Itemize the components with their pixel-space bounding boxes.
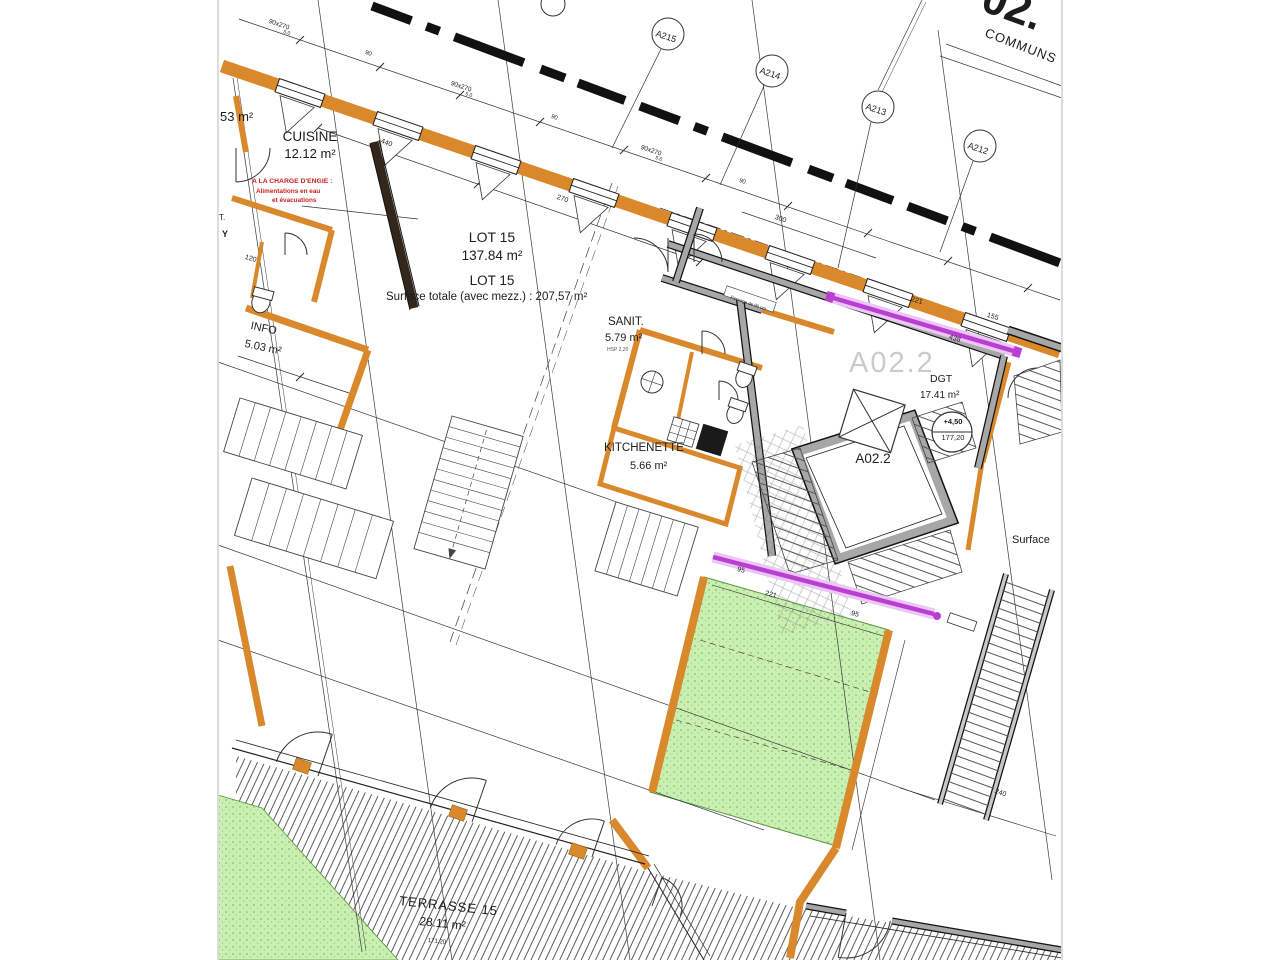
heavy-dashed-wall-line	[372, 6, 1060, 263]
red-note-line2: Alimentations en eau	[256, 188, 320, 195]
red-note-leader	[302, 206, 418, 219]
dim-95b: 95	[850, 610, 860, 619]
sheet-left-edge	[217, 0, 219, 960]
room-area-lot15: 137.84 m²	[442, 249, 542, 264]
room-label-sanit: SANIT.	[608, 316, 644, 329]
room-area-cuisine: 12.12 m²	[252, 147, 368, 161]
surface-partial-label: Surface	[1012, 534, 1050, 546]
elevation-top: +4,50	[936, 418, 970, 426]
room-area-kitchenette: 5.66 m²	[630, 460, 667, 472]
left-margin	[0, 0, 218, 960]
watermark-a022: A02.2	[849, 348, 935, 380]
stair-core-label: A02.2	[838, 452, 908, 467]
room-label-kitchenette: KITCHENETTE	[604, 442, 684, 455]
red-note-line1: A LA CHARGE D'ENGIE :	[252, 178, 332, 185]
kitchen-appliance-dark	[696, 424, 728, 456]
dark-masonry-wall	[370, 140, 419, 310]
interior-stair-ladder	[414, 416, 523, 569]
room-label-dgt: DGT	[930, 374, 952, 386]
lot15-surface-note: Surface totale (avec mezz.) : 207,57 m²	[386, 291, 587, 304]
right-top-stair	[1008, 360, 1062, 444]
grid-bubbles	[541, 0, 996, 268]
partial-y-label: Y	[222, 230, 228, 240]
floorplan-sheet: 02. COMMUNS A02.2 A215 A214 A213 A212 53…	[0, 0, 1280, 960]
room-label-cuisine: CUISINE	[252, 130, 368, 145]
room-area-sanit: 5.79 m²	[605, 332, 642, 344]
dim-95a: 95	[736, 566, 746, 575]
room-area-dgt: 17.41 m²	[920, 390, 959, 401]
elevation-bottom: 177,20	[934, 434, 972, 442]
furniture-blocks	[224, 398, 699, 596]
plan-linework	[0, 0, 1280, 960]
sheet-right-edge	[1061, 0, 1063, 960]
external-stair	[940, 574, 1052, 820]
room-label-53: 53 m²	[220, 110, 253, 124]
right-margin	[1062, 0, 1280, 960]
partial-t-label: T.	[219, 214, 225, 223]
room-label-lot15: LOT 15	[452, 230, 532, 245]
red-note-line3: et évacuations	[272, 197, 316, 204]
room-sub-sanit: HSP 2,20	[607, 348, 628, 354]
room-label-lot15b: LOT 15	[452, 274, 532, 289]
washbasin	[638, 368, 666, 396]
